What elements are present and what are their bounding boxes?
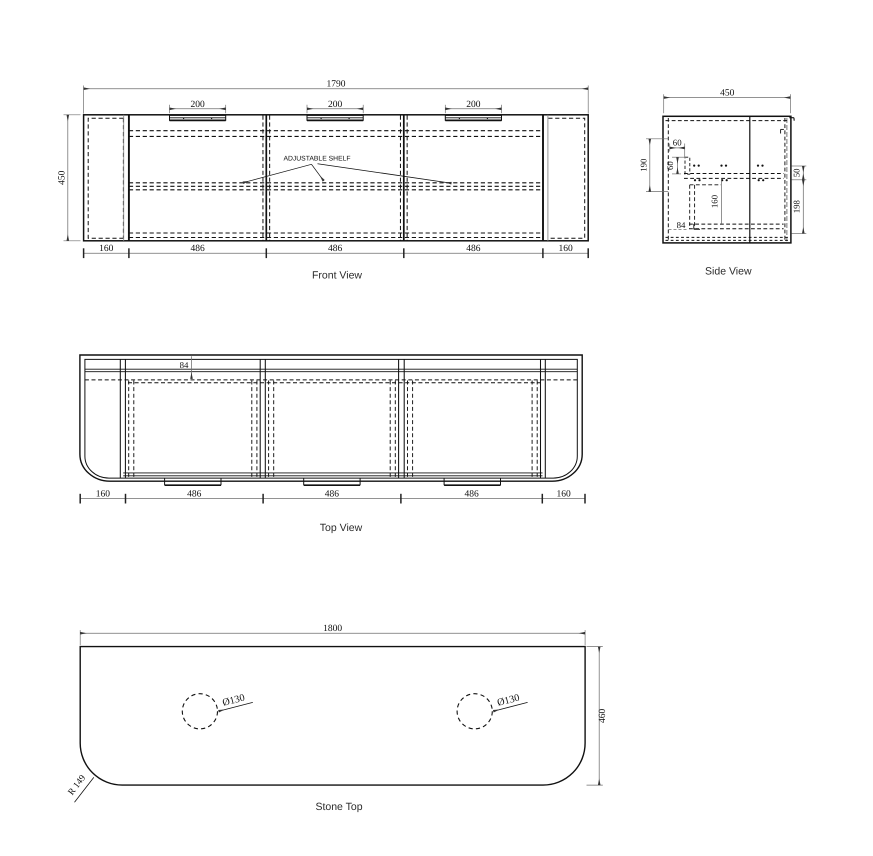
svg-text:Stone Top: Stone Top <box>315 801 362 813</box>
svg-text:160: 160 <box>558 244 573 254</box>
svg-text:486: 486 <box>325 490 340 500</box>
svg-text:84: 84 <box>180 360 189 370</box>
svg-text:160: 160 <box>710 194 720 208</box>
svg-text:160: 160 <box>556 490 571 500</box>
svg-text:486: 486 <box>464 490 479 500</box>
svg-text:160: 160 <box>96 490 111 500</box>
svg-text:1800: 1800 <box>323 624 342 634</box>
svg-text:200: 200 <box>466 100 481 110</box>
svg-text:486: 486 <box>187 490 202 500</box>
svg-text:486: 486 <box>466 244 481 254</box>
svg-text:200: 200 <box>328 100 343 110</box>
svg-text:486: 486 <box>328 244 343 254</box>
svg-text:84: 84 <box>677 220 686 230</box>
svg-text:200: 200 <box>190 100 205 110</box>
svg-text:Top View: Top View <box>320 522 363 534</box>
svg-text:60: 60 <box>665 161 675 170</box>
svg-text:ADJUSTABLE SHELF: ADJUSTABLE SHELF <box>283 155 350 162</box>
svg-text:50: 50 <box>792 168 802 177</box>
svg-text:160: 160 <box>99 244 114 254</box>
svg-text:190: 190 <box>639 158 649 172</box>
svg-text:460: 460 <box>598 709 608 724</box>
svg-text:450: 450 <box>720 89 735 99</box>
svg-text:Front View: Front View <box>312 270 362 282</box>
svg-text:1790: 1790 <box>327 79 346 89</box>
svg-text:Side View: Side View <box>705 266 752 278</box>
svg-text:450: 450 <box>58 170 68 185</box>
svg-text:486: 486 <box>190 244 205 254</box>
svg-text:60: 60 <box>673 137 682 147</box>
svg-text:198: 198 <box>792 200 802 214</box>
